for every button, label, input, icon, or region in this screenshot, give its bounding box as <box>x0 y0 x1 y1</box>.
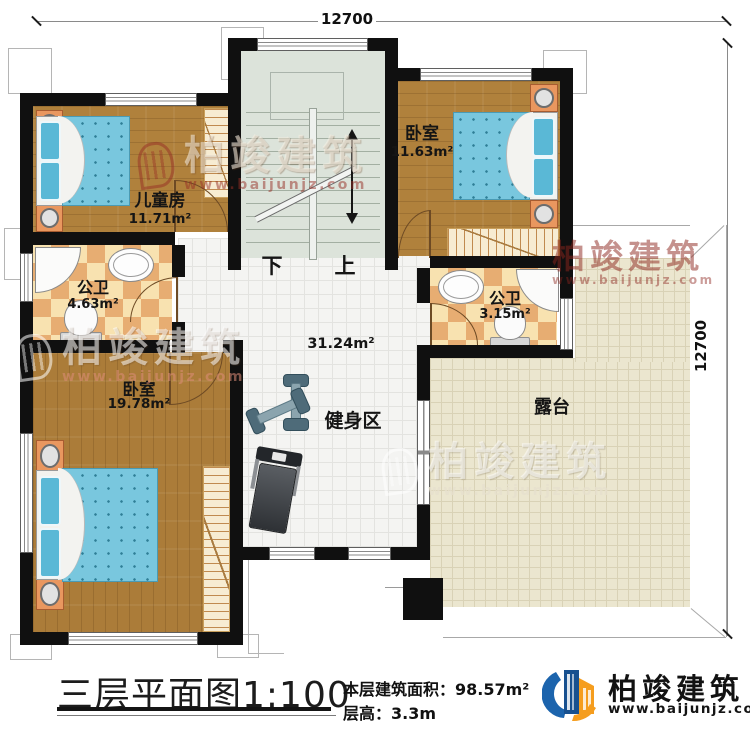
eave-outline <box>248 560 284 654</box>
stair-landing-outline <box>270 72 344 120</box>
terrace-parapet-bottom <box>443 607 726 638</box>
wall <box>197 93 241 106</box>
dimension-line-top <box>36 21 727 22</box>
floor-area-row: 本层建筑面积：98.57m² <box>343 676 529 700</box>
wall <box>417 345 570 358</box>
bath-right-window <box>560 298 573 350</box>
sink <box>108 248 154 282</box>
room-area: 19.78m² <box>102 397 176 411</box>
floor-height-value: 3.3m <box>391 704 436 723</box>
gym-zone-label: 健身区 <box>310 412 396 432</box>
bedroom-bottom-window-bottom <box>68 632 198 645</box>
bed-pillow <box>532 157 555 197</box>
room-label: 儿童房 <box>108 193 212 211</box>
stairwell-window <box>257 38 368 51</box>
terrace-sliding-door <box>417 400 430 505</box>
wardrobe <box>203 466 230 632</box>
bath-right-door-leaf <box>430 303 432 345</box>
stair-up-label: 上 <box>331 255 359 277</box>
floor-height-row: 层高：3.3m <box>343 700 436 724</box>
nightstand <box>530 84 558 112</box>
room-label: 卧室 <box>384 126 460 144</box>
wardrobe <box>447 228 559 257</box>
bed-pillow <box>39 476 61 526</box>
title-underline-thin <box>57 715 336 716</box>
wall-column <box>403 578 443 620</box>
wall <box>20 353 33 433</box>
wall <box>417 358 430 400</box>
terrace-floor-main <box>430 358 690 607</box>
wall <box>172 322 185 353</box>
bath-left-door-leaf <box>176 277 178 322</box>
terrace-parapet-right <box>690 225 727 637</box>
room-area: 11.71m² <box>108 212 212 226</box>
children-room-window <box>105 93 197 106</box>
hall-window-1 <box>269 547 315 560</box>
stair-direction-line <box>351 138 353 215</box>
wall <box>560 68 573 298</box>
room-area: 11.63m² <box>386 145 458 159</box>
dimension-value-top: 12700 <box>318 10 376 28</box>
room-label: 公卫 <box>470 291 540 308</box>
bedroom-top-window <box>420 68 532 81</box>
dimension-value-right: 12700 <box>692 311 710 381</box>
terrace-label: 露台 <box>514 399 590 418</box>
floor-height-label: 层高： <box>343 704 391 723</box>
nightstand <box>36 204 63 232</box>
bed-pillow <box>39 161 61 201</box>
stair-down-label: 下 <box>258 255 286 277</box>
wall <box>20 632 68 645</box>
wall <box>315 547 348 560</box>
wall <box>368 38 385 51</box>
brand-logo-icon <box>542 664 604 722</box>
wall <box>385 68 420 81</box>
wall <box>228 38 241 270</box>
room-area: 4.63m² <box>60 298 126 312</box>
bath-left-window <box>20 253 33 302</box>
wall <box>241 38 257 51</box>
bed-pillow <box>532 117 555 157</box>
hall-window-2 <box>348 547 391 560</box>
wall <box>430 256 560 268</box>
stair-arrow-up-icon <box>346 129 358 140</box>
dimension-line-right <box>727 44 728 636</box>
wall <box>172 245 185 277</box>
room-area: 3.15m² <box>472 308 538 322</box>
wardrobe <box>204 108 230 198</box>
terrace-floor-arm <box>575 258 690 362</box>
eave-line <box>385 587 404 588</box>
bed-pillow <box>39 528 61 578</box>
title-underline-thick <box>57 707 331 711</box>
floor-area-label: 本层建筑面积： <box>343 680 455 699</box>
wall <box>417 268 430 303</box>
bed-pillow <box>39 121 61 161</box>
wall <box>20 93 33 245</box>
floor-area-value: 98.57m² <box>455 680 529 699</box>
bedroom-top-door-leaf <box>429 210 431 258</box>
hall-area: 31.24m² <box>300 337 382 352</box>
title-block: 三层平面图1:100 本层建筑面积：98.57m² 层高：3.3m 柏竣建筑 w… <box>0 660 750 729</box>
treadmill <box>231 444 322 540</box>
wall <box>198 632 243 645</box>
wall <box>20 232 175 245</box>
wall <box>20 340 170 353</box>
bedroom-bottom-window-left <box>20 433 33 553</box>
wall <box>230 345 243 645</box>
brand-url: www.baijunjz.com <box>608 701 750 717</box>
stair-arrow-down-icon <box>346 213 358 224</box>
wall <box>417 505 430 560</box>
floor-plan-canvas: 儿童房 11.71m² 卧室 11.63m² 公卫 4.63m² 公卫 3.15… <box>0 0 750 729</box>
roof-outline-box <box>8 48 52 94</box>
wall <box>20 93 105 106</box>
nightstand <box>36 578 64 610</box>
room-label: 公卫 <box>60 280 126 297</box>
wall <box>243 547 269 560</box>
nightstand <box>530 200 558 228</box>
